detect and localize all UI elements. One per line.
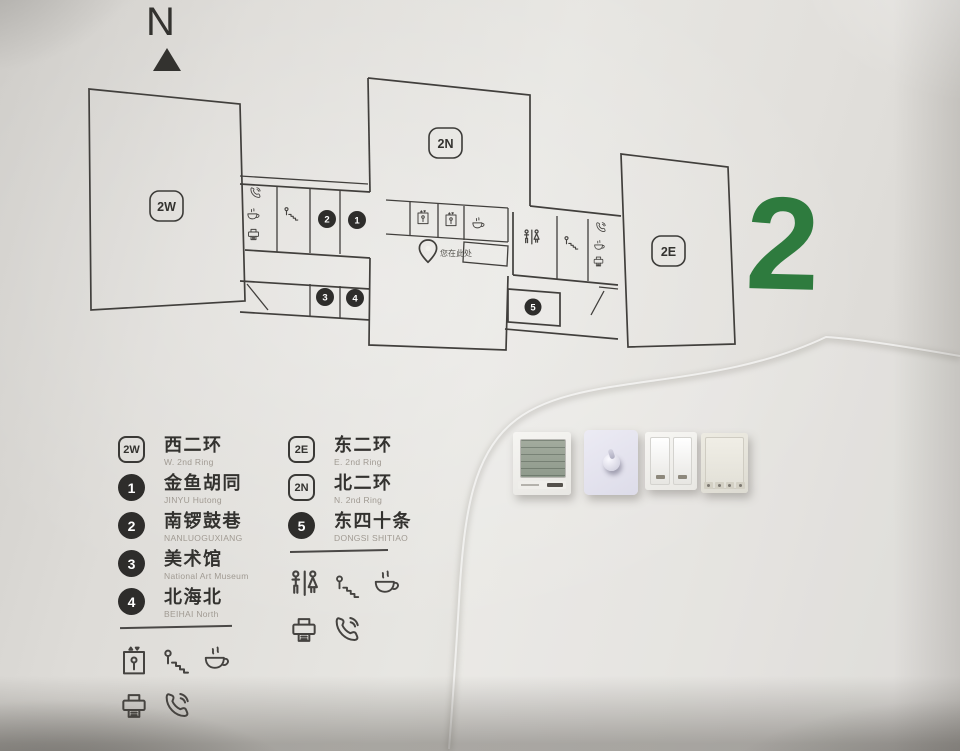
- panel-button: [736, 482, 745, 489]
- legend-row: 2W 西二环 W. 2nd Ring: [118, 436, 298, 462]
- printer-icon: [288, 614, 320, 646]
- legend-marker: 4: [118, 588, 145, 615]
- rocker-key: [673, 437, 693, 485]
- toilets-icon: [288, 568, 322, 602]
- legend-marker: 2: [118, 512, 145, 539]
- legend-label-en: DONGSI SHITIAO: [334, 534, 412, 543]
- toilets-icon: [525, 230, 539, 244]
- cafe-icon: [473, 218, 484, 228]
- badge-2w: 2W: [157, 200, 176, 214]
- cafe-icon: [248, 209, 259, 219]
- building-west: 2W: [89, 89, 245, 310]
- rocker-switch: [645, 432, 697, 490]
- stairs-icon: [160, 646, 192, 678]
- legend-row: 2N 北二环 N. 2nd Ring: [288, 474, 468, 500]
- you-are-here-label: 您在此处: [440, 248, 472, 258]
- legend-row: 5 东四十条 DONGSI SHITIAO: [288, 512, 468, 538]
- floor-number: 2: [744, 177, 821, 311]
- legend-marker: 2E: [288, 436, 315, 463]
- legend-label-zh: 北二环: [334, 474, 393, 492]
- legend-marker: 3: [118, 550, 145, 577]
- thermostat-screen: [520, 439, 566, 478]
- printer-icon: [594, 257, 603, 266]
- panel-button: [704, 482, 713, 489]
- legend-divider: [290, 549, 388, 553]
- legend-label-zh: 南锣鼓巷: [164, 512, 243, 530]
- badge-2e: 2E: [661, 245, 676, 259]
- panel-button: [726, 482, 735, 489]
- panel-button: [715, 482, 724, 489]
- stop-marker-4: 4: [352, 293, 358, 304]
- legend-east: 2E 东二环 E. 2nd Ring 2N 北二环 N. 2nd Ring 5 …: [288, 436, 468, 658]
- building-east: 2E: [621, 154, 735, 347]
- phone-icon: [251, 188, 260, 198]
- cafe-icon: [595, 241, 605, 250]
- stairs-icon: [332, 572, 362, 602]
- printer-icon: [118, 690, 150, 722]
- legend-marker: 1: [118, 474, 145, 501]
- cafe-icon: [202, 644, 232, 674]
- corridor-east: 5: [505, 206, 621, 339]
- legend-label-en: BEIHAI North: [164, 610, 223, 619]
- elevator-icon: [446, 213, 456, 226]
- legend-divider: [120, 625, 232, 629]
- legend-marker: 2W: [118, 436, 145, 463]
- cafe-icon: [372, 568, 402, 598]
- legend-west: 2W 西二环 W. 2nd Ring 1 金鱼胡同 JINYU Hutong 2…: [118, 436, 298, 734]
- stop-marker-5: 5: [530, 302, 536, 313]
- legend-label-zh: 西二环: [164, 436, 223, 454]
- legend-label-en: National Art Museum: [164, 572, 249, 581]
- stop-marker-1: 1: [354, 215, 360, 226]
- stairs-icon: [565, 237, 578, 249]
- corridor-west: 1 2 3 4: [240, 176, 370, 320]
- legend-row: 3 美术馆 National Art Museum: [118, 550, 298, 576]
- dimmer-switch: [584, 430, 638, 495]
- legend-label-en: N. 2nd Ring: [334, 496, 393, 505]
- thermostat: [513, 432, 571, 495]
- legend-label-zh: 东四十条: [334, 512, 412, 530]
- elevator-icon: [118, 646, 150, 678]
- thermostat-button-strip: [518, 481, 566, 489]
- legend-marker: 2N: [288, 474, 315, 501]
- legend-row: 4 北海北 BEIHAI North: [118, 588, 298, 614]
- stop-marker-2: 2: [324, 214, 329, 225]
- dimmer-knob: [603, 454, 620, 471]
- phone-icon: [597, 223, 606, 232]
- building-north: 2N 您在此处: [368, 78, 530, 350]
- wall-photo: N 2W 1 2: [0, 0, 960, 751]
- legend-label-zh: 东二环: [334, 436, 393, 454]
- phone-icon: [330, 614, 362, 646]
- phone-icon: [160, 690, 192, 722]
- ramp-line: [247, 284, 268, 310]
- legend-marker: 5: [288, 512, 315, 539]
- legend-label-zh: 美术馆: [164, 550, 249, 568]
- stop-marker-3: 3: [322, 292, 327, 303]
- legend-label-en: W. 2nd Ring: [164, 458, 223, 467]
- stairs-icon: [285, 208, 298, 220]
- you-are-here-pin: [419, 240, 436, 262]
- control-panel: [701, 433, 748, 493]
- legend-label-zh: 北海北: [164, 588, 223, 606]
- thermostat-label: [521, 484, 539, 486]
- legend-label-en: JINYU Hutong: [164, 496, 242, 505]
- printer-icon: [249, 229, 259, 239]
- elevator-icon: [418, 211, 428, 224]
- legend-label-en: E. 2nd Ring: [334, 458, 393, 467]
- legend-label-zh: 金鱼胡同: [164, 474, 242, 492]
- legend-row: 2 南锣鼓巷 NANLUOGUXIANG: [118, 512, 298, 538]
- badge-2n: 2N: [438, 137, 454, 151]
- legend-row: 1 金鱼胡同 JINYU Hutong: [118, 474, 298, 500]
- legend-label-en: NANLUOGUXIANG: [164, 534, 243, 543]
- thermostat-slot: [547, 483, 563, 487]
- rocker-key: [650, 437, 670, 485]
- legend-row: 2E 东二环 E. 2nd Ring: [288, 436, 468, 462]
